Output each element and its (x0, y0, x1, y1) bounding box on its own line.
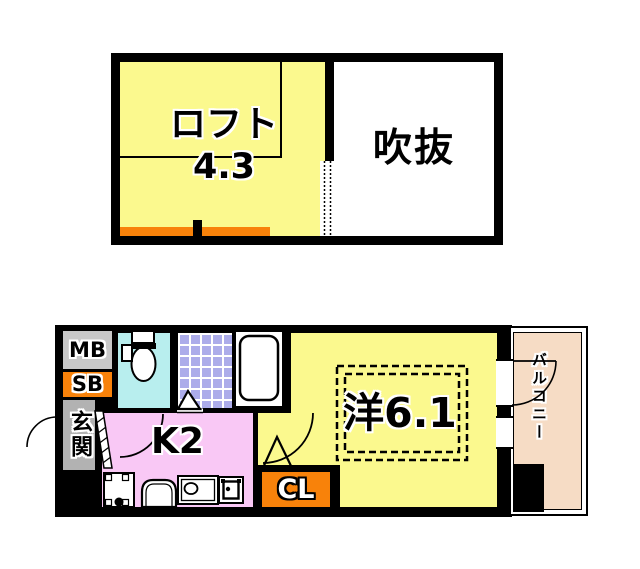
entrance-hall: 玄関 (63, 400, 95, 470)
storage-box-label: SB (72, 374, 103, 395)
toilet-room (118, 333, 170, 408)
closet: CL (262, 472, 330, 507)
loft-label: ロフト (121, 107, 327, 143)
loft-area-label: 4.3 (121, 150, 327, 185)
kitchen-label: K2 (102, 424, 253, 460)
western-room-label: 洋6.1 (329, 393, 471, 434)
meter-box: MB (63, 331, 112, 369)
closet-label: CL (277, 476, 314, 503)
entry-door-arc (27, 417, 57, 447)
bath-room (178, 333, 232, 408)
void-label: 吹抜 (334, 129, 494, 168)
balcony-wall-block (513, 464, 544, 512)
balcony-label: バルコニー (531, 352, 546, 442)
balcony-door-opening (496, 359, 513, 407)
entrance-label: 玄関 (68, 410, 90, 460)
storage-box: SB (63, 372, 112, 397)
meter-box-label: MB (69, 340, 106, 361)
bathtub-area (234, 330, 284, 408)
balcony-window-opening (496, 416, 513, 449)
room-vestibule (258, 413, 291, 467)
floor-plan-canvas: バルコニー MB SB 玄関 CL (0, 0, 640, 569)
loft-ledge-notch (193, 220, 202, 236)
